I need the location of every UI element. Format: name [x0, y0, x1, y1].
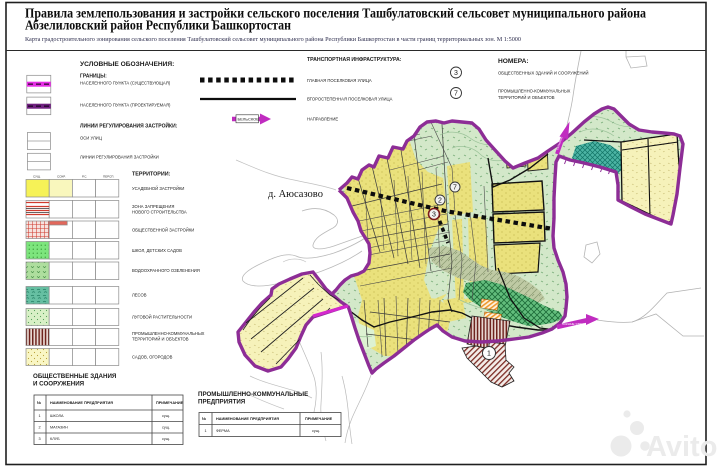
svg-text:ПРИМЕЧАНИЕ: ПРИМЕЧАНИЕ — [156, 401, 184, 405]
svg-text:ШКОЛ, ДЕТСКИХ САДОВ: ШКОЛ, ДЕТСКИХ САДОВ — [132, 248, 182, 253]
svg-text:№: № — [37, 401, 41, 405]
svg-text:НАИМЕНОВАНИЕ ПРЕДПРИЯТИЯ: НАИМЕНОВАНИЕ ПРЕДПРИЯТИЯ — [50, 401, 113, 405]
svg-text:ЛИНИИ РЕГУЛИРОВАНИЯ ЗАСТРОЙКИ:: ЛИНИИ РЕГУЛИРОВАНИЯ ЗАСТРОЙКИ: — [80, 122, 178, 130]
svg-text:1: 1 — [487, 351, 491, 358]
svg-text:3: 3 — [454, 70, 458, 77]
svg-text:ЛИНИИ РЕГУЛИРОВАНИЯ ЗАСТРОЙКИ: ЛИНИИ РЕГУЛИРОВАНИЯ ЗАСТРОЙКИ — [80, 155, 159, 160]
svg-text:ТРАНСПОРТНАЯ ИНФРАСТРУКТУРА:: ТРАНСПОРТНАЯ ИНФРАСТРУКТУРА: — [307, 57, 402, 63]
svg-text:ТЕРРИТОРИЙ И ОБЪЕКТОВ: ТЕРРИТОРИЙ И ОБЪЕКТОВ — [132, 337, 189, 342]
svg-text:И СООРУЖЕНИЯ: И СООРУЖЕНИЯ — [33, 381, 85, 388]
svg-text:ПРОМЫШЛЕННО-КОММУНАЛЬНЫХ: ПРОМЫШЛЕННО-КОММУНАЛЬНЫХ — [498, 89, 571, 94]
svg-text:Avito: Avito — [646, 431, 717, 463]
svg-text:УСЛОВНЫЕ ОБОЗНАЧЕНИЯ:: УСЛОВНЫЕ ОБОЗНАЧЕНИЯ: — [80, 61, 174, 68]
svg-text:ОБЩЕСТВЕННОЙ ЗАСТРОЙКИ: ОБЩЕСТВЕННОЙ ЗАСТРОЙКИ — [132, 228, 194, 233]
svg-text:НАСЕЛЕННОГО ПУНКТА (ПРОЕКТИРУЕ: НАСЕЛЕННОГО ПУНКТА (ПРОЕКТИРУЕМАЯ) — [80, 103, 171, 108]
svg-text:УСАДЕБНОЙ ЗАСТРОЙКИ: УСАДЕБНОЙ ЗАСТРОЙКИ — [132, 186, 184, 191]
svg-text:САДОВ, ОГОРОДОВ: САДОВ, ОГОРОДОВ — [132, 355, 173, 360]
svg-text:ГЛАВНАЯ ПОСЕЛКОВАЯ УЛИЦА: ГЛАВНАЯ ПОСЕЛКОВАЯ УЛИЦА — [307, 78, 372, 83]
svg-text:НОМЕРА:: НОМЕРА: — [498, 58, 529, 65]
svg-text:1: 1 — [39, 414, 41, 418]
svg-text:сущ.: сущ. — [162, 414, 170, 418]
svg-text:МАГАЗИН: МАГАЗИН — [50, 426, 68, 430]
svg-text:Р.С.: Р.С. — [82, 175, 87, 179]
svg-text:ПРЕДПРИЯТИЯ: ПРЕДПРИЯТИЯ — [198, 399, 246, 406]
svg-text:сущ.: сущ. — [162, 437, 170, 441]
svg-text:ЗОНА ЗАПРЕЩЕНИЯ: ЗОНА ЗАПРЕЩЕНИЯ — [132, 204, 174, 209]
svg-text:ПРИМЕЧАНИЕ: ПРИМЕЧАНИЕ — [305, 417, 333, 421]
svg-text:2: 2 — [39, 426, 41, 430]
svg-text:ЛУГОВОЙ РАСТИТЕЛЬНОСТИ: ЛУГОВОЙ РАСТИТЕЛЬНОСТИ — [132, 315, 192, 320]
svg-text:2: 2 — [438, 198, 442, 205]
svg-text:ОБЩЕСТВЕННЫЕ ЗДАНИЯ: ОБЩЕСТВЕННЫЕ ЗДАНИЯ — [33, 373, 117, 380]
svg-text:1: 1 — [205, 429, 207, 433]
svg-text:ПРОМЫШЛЕННО-КОММУНАЛЬНЫХ: ПРОМЫШЛЕННО-КОММУНАЛЬНЫХ — [132, 331, 205, 336]
svg-text:ФЕРМА: ФЕРМА — [216, 429, 230, 433]
svg-text:№: № — [202, 417, 206, 421]
svg-text:НАПРАВЛЕНИЕ: НАПРАВЛЕНИЕ — [307, 117, 338, 122]
svg-text:ГРАНИЦЫ:: ГРАНИЦЫ: — [80, 74, 107, 80]
svg-text:7: 7 — [453, 185, 457, 192]
svg-text:НАИМЕНОВАНИЕ ПРЕДПРИЯТИЯ: НАИМЕНОВАНИЕ ПРЕДПРИЯТИЯ — [216, 417, 279, 421]
svg-text:ПРОМЫШЛЕННО-КОММУНАЛЬНЫЕ: ПРОМЫШЛЕННО-КОММУНАЛЬНЫЕ — [198, 391, 308, 398]
svg-text:ОБЩЕСТВЕННЫХ ЗДАНИЙ И СООРУЖЕН: ОБЩЕСТВЕННЫХ ЗДАНИЙ И СООРУЖЕНИЙ — [498, 71, 589, 76]
svg-text:сущ.: сущ. — [162, 426, 170, 430]
svg-text:КЛУБ: КЛУБ — [50, 437, 60, 441]
svg-text:БЕЛЬСКОЕ: БЕЛЬСКОЕ — [238, 117, 260, 122]
svg-text:Карта градостроительного зонир: Карта градостроительного зонирования сел… — [25, 36, 521, 43]
svg-text:ТЕРРИТОРИИ:: ТЕРРИТОРИИ: — [132, 172, 171, 178]
svg-text:Абзелиловский район Республики: Абзелиловский район Республики Башкортос… — [25, 18, 291, 33]
svg-text:ЮЖНЫЕ УЗЯНЬ: ЮЖНЫЕ УЗЯНЬ — [562, 322, 585, 326]
svg-text:НАСЕЛЕННОГО ПУНКТА (СУЩЕСТВУЮЩ: НАСЕЛЕННОГО ПУНКТА (СУЩЕСТВУЮЩАЯ) — [80, 81, 171, 86]
svg-text:ОСИ УЛИЦ: ОСИ УЛИЦ — [80, 136, 103, 141]
svg-text:ТЕРРИТОРИЙ И ОБЪЕКТОВ: ТЕРРИТОРИЙ И ОБЪЕКТОВ — [498, 95, 555, 100]
svg-text:ШКОЛА: ШКОЛА — [50, 414, 64, 418]
svg-text:сущ.: сущ. — [312, 429, 320, 433]
svg-text:НОВОГО СТРОИТЕЛЬСТВА: НОВОГО СТРОИТЕЛЬСТВА — [132, 210, 187, 215]
svg-text:д. Аюсазово: д. Аюсазово — [268, 189, 323, 200]
svg-text:ВТОРОСТЕПЕННАЯ ПОСЕЛКОВАЯ УЛИЦ: ВТОРОСТЕПЕННАЯ ПОСЕЛКОВАЯ УЛИЦА — [307, 97, 393, 102]
svg-text:ПЕРСП.: ПЕРСП. — [103, 175, 114, 179]
svg-text:7: 7 — [454, 91, 458, 98]
svg-text:3: 3 — [39, 437, 41, 441]
svg-text:СОХР.: СОХР. — [57, 175, 66, 179]
svg-text:ВОДООХРАННОГО ОЗЕЛЕНЕНИЯ: ВОДООХРАННОГО ОЗЕЛЕНЕНИЯ — [132, 268, 200, 273]
svg-text:3: 3 — [432, 212, 436, 219]
svg-text:СУЩ.: СУЩ. — [33, 175, 41, 179]
svg-text:ЛЕСОВ: ЛЕСОВ — [132, 293, 147, 298]
